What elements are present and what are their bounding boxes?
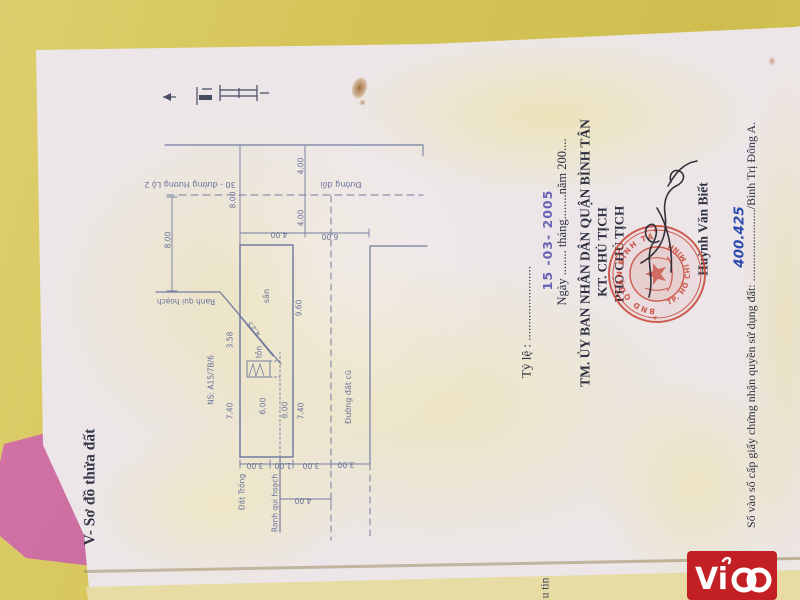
vico-logo: Vi — [687, 551, 777, 600]
paper-highlight — [200, 100, 500, 440]
vico-logo-text: Vi — [695, 562, 728, 597]
certificate-paper — [0, 0, 800, 600]
rust-stain-small — [768, 56, 776, 66]
paper-stain — [80, 420, 360, 590]
rust-stain-small — [359, 99, 366, 106]
photo-of-land-certificate: V- Sơ đồ thửa đấtTỷ lệ : ...............… — [0, 0, 800, 600]
